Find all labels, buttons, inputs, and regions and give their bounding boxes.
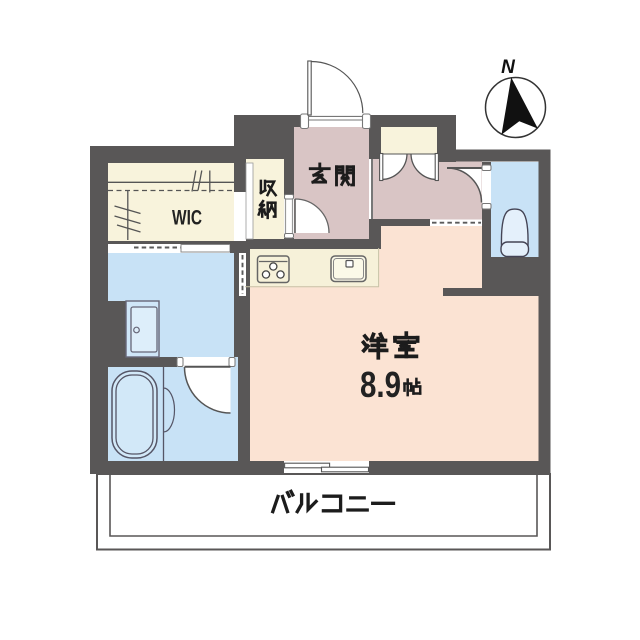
svg-text:N: N: [501, 57, 516, 78]
svg-text:WIC: WIC: [172, 206, 202, 230]
svg-text:8.9: 8.9: [360, 364, 401, 405]
